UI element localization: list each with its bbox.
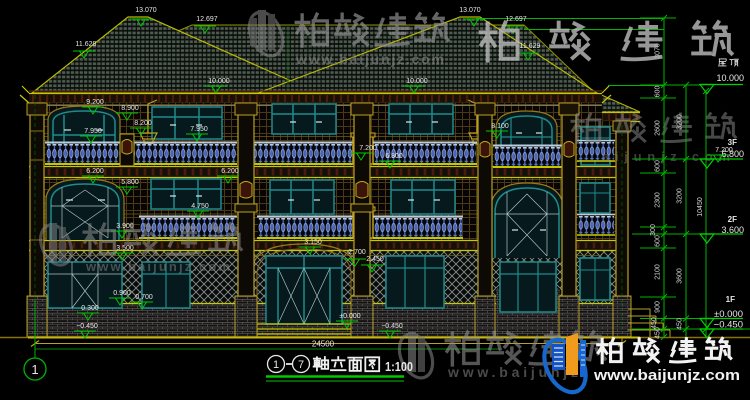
svg-text:8.200: 8.200 — [134, 120, 152, 127]
svg-text:7: 7 — [298, 359, 304, 371]
svg-text:6.200: 6.200 — [86, 168, 104, 175]
svg-text:600: 600 — [655, 86, 662, 98]
svg-text:600: 600 — [655, 160, 662, 172]
svg-text:0.900: 0.900 — [113, 290, 131, 297]
svg-text:6.200: 6.200 — [221, 168, 239, 175]
svg-text:10.000: 10.000 — [406, 78, 428, 85]
svg-text:7.200: 7.200 — [359, 145, 377, 152]
svg-text:10.000: 10.000 — [716, 73, 744, 83]
svg-text:12.697: 12.697 — [505, 16, 527, 23]
svg-text:7.950: 7.950 — [190, 126, 208, 133]
svg-text:1: 1 — [31, 362, 38, 377]
svg-text:3F: 3F — [728, 138, 737, 147]
svg-text:450: 450 — [651, 317, 658, 329]
svg-text:3.500: 3.500 — [116, 245, 134, 252]
svg-text:300: 300 — [650, 224, 657, 236]
svg-text:24500: 24500 — [312, 340, 335, 349]
svg-text:1F: 1F — [726, 295, 735, 304]
svg-text:10450: 10450 — [697, 197, 704, 217]
svg-text:2600: 2600 — [655, 120, 662, 136]
svg-text:www.baijunjz.com: www.baijunjz.com — [593, 368, 740, 384]
svg-text:450: 450 — [655, 327, 662, 339]
svg-text:3.150: 3.150 — [304, 239, 322, 246]
svg-text:450: 450 — [677, 318, 684, 330]
svg-text:6.800: 6.800 — [385, 153, 403, 160]
svg-text:0.300: 0.300 — [81, 305, 99, 312]
svg-text:0.700: 0.700 — [135, 294, 153, 301]
svg-text:3200: 3200 — [677, 114, 684, 130]
svg-text:−0.450: −0.450 — [76, 323, 98, 330]
svg-text:4.750: 4.750 — [191, 203, 209, 210]
svg-text:600: 600 — [655, 235, 662, 247]
svg-text:7.950: 7.950 — [84, 128, 102, 135]
svg-text:11.628: 11.628 — [76, 41, 97, 48]
svg-text:8.900: 8.900 — [121, 105, 139, 112]
svg-text:11.629: 11.629 — [520, 43, 541, 50]
svg-text:±0.000: ±0.000 — [339, 313, 360, 320]
svg-text:12.697: 12.697 — [196, 16, 218, 23]
svg-text:13.070: 13.070 — [459, 7, 481, 14]
svg-text:2F: 2F — [728, 215, 737, 224]
svg-text:3200: 3200 — [677, 188, 684, 204]
svg-text:8.100: 8.100 — [491, 123, 509, 130]
svg-text:2100: 2100 — [655, 264, 662, 280]
svg-text:−0.450: −0.450 — [381, 323, 403, 330]
svg-text:1: 1 — [273, 359, 279, 371]
svg-text:5.800: 5.800 — [121, 179, 139, 186]
svg-text:1:100: 1:100 — [385, 359, 413, 374]
svg-text:9.200: 9.200 — [86, 99, 104, 106]
svg-text:13.070: 13.070 — [135, 7, 157, 14]
svg-text:2.700: 2.700 — [348, 249, 366, 256]
svg-text:2300: 2300 — [655, 192, 662, 208]
svg-text:7.200: 7.200 — [715, 147, 733, 154]
svg-text:2.450: 2.450 — [366, 256, 384, 263]
svg-text:3600: 3600 — [677, 268, 684, 284]
svg-text:900: 900 — [655, 301, 662, 313]
svg-text:10.000: 10.000 — [208, 78, 230, 85]
